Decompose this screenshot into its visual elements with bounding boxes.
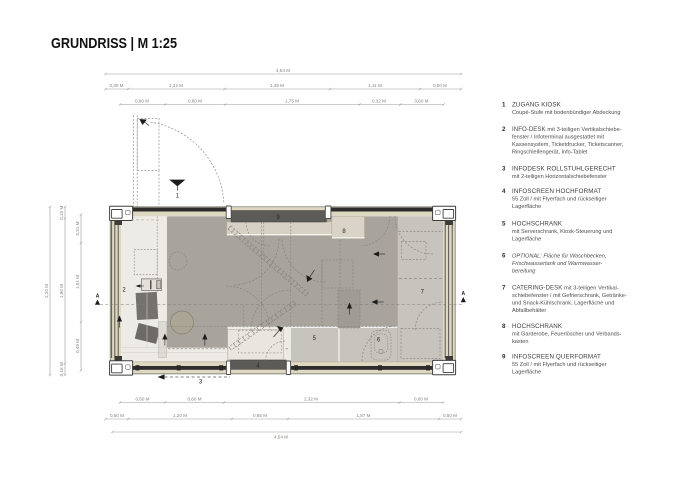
svg-text:und Snack-Kühlschrank, Lagerfl: und Snack-Kühlschrank, Lagerfläche und — [512, 301, 614, 307]
svg-text:55 Zoll / mit Flyerfach und rü: 55 Zoll / mit Flyerfach und rückseitiger — [512, 197, 607, 203]
svg-text:0,50 M: 0,50 M — [433, 83, 447, 88]
svg-text:4,54 M: 4,54 M — [276, 68, 290, 73]
svg-text:mit 2-teiligen Horizontalschie: mit 2-teiligen Horizontalschiebefenster — [512, 174, 607, 180]
svg-text:INFOSCREEN QUERFORMAT: INFOSCREEN QUERFORMAT — [512, 354, 601, 361]
svg-text:2,20 M: 2,20 M — [44, 284, 49, 298]
svg-text:0,60 M: 0,60 M — [135, 98, 149, 103]
svg-text:INFODESK ROLLSTUHLGERECHT: INFODESK ROLLSTUHLGERECHT — [512, 166, 616, 173]
svg-text:55 Zoll / mit Flyerfach und rü: 55 Zoll / mit Flyerfach und rückseitiger — [512, 362, 607, 368]
svg-text:1,39 M: 1,39 M — [270, 83, 284, 88]
svg-text:mit Serverschrank, Kiosk-Steue: mit Serverschrank, Kiosk-Steuerung und — [512, 229, 612, 235]
svg-text:9: 9 — [502, 354, 506, 361]
svg-text:2,32 M: 2,32 M — [304, 396, 318, 401]
svg-text:fenster / Infoterminal ausgest: fenster / Infoterminal ausgestattet mit — [512, 135, 604, 141]
svg-text:0,60 M: 0,60 M — [414, 98, 428, 103]
svg-text:CATERING-DESK mit 3-teiligen V: CATERING-DESK mit 3-teiligen Vertikal- — [512, 285, 619, 292]
svg-text:0,50 M: 0,50 M — [443, 413, 457, 418]
svg-text:8: 8 — [502, 323, 506, 330]
svg-text:OPTIONAL: Fläche für Waschbeck: OPTIONAL: Fläche für Waschbecken, — [512, 254, 606, 260]
svg-text:0,15 M: 0,15 M — [59, 362, 64, 376]
svg-text:4: 4 — [502, 188, 506, 195]
svg-text:1,20 M: 1,20 M — [173, 413, 187, 418]
svg-text:A: A — [461, 291, 465, 297]
svg-text:kasten: kasten — [512, 339, 528, 345]
svg-text:1,75 M: 1,75 M — [285, 98, 299, 103]
svg-text:GRUNDRISS | M 1:25: GRUNDRISS | M 1:25 — [51, 35, 177, 52]
svg-text:INFOSCREEN HOCHFORMAT: INFOSCREEN HOCHFORMAT — [512, 188, 601, 195]
svg-text:HOCHSCHRANK: HOCHSCHRANK — [512, 323, 563, 330]
svg-text:1,90 M: 1,90 M — [59, 284, 64, 298]
svg-text:0,80 M: 0,80 M — [187, 396, 201, 401]
svg-text:6: 6 — [502, 253, 506, 260]
svg-text:2: 2 — [502, 126, 506, 133]
svg-text:0,32 M: 0,32 M — [372, 98, 386, 103]
svg-text:Coupé-Stufe mit bodenbündiger: Coupé-Stufe mit bodenbündiger Abdeckung — [512, 110, 621, 116]
svg-text:HOCHSCHRANK: HOCHSCHRANK — [512, 221, 563, 228]
svg-text:0,85 M: 0,85 M — [253, 413, 267, 418]
svg-text:ZUGANG KIOSK: ZUGANG KIOSK — [512, 102, 562, 109]
svg-text:1,11 M: 1,11 M — [368, 83, 382, 88]
svg-text:4,54 M: 4,54 M — [274, 435, 288, 440]
svg-text:1: 1 — [502, 102, 506, 109]
svg-text:5: 5 — [502, 221, 506, 228]
svg-text:0,50 M: 0,50 M — [110, 413, 124, 418]
svg-text:Ringschleifengerät, Info-Table: Ringschleifengerät, Info-Tablet — [512, 150, 588, 156]
svg-text:0,60 M: 0,60 M — [414, 396, 428, 401]
svg-text:1,01 M: 1,01 M — [75, 275, 80, 289]
svg-text:Kassensystem, Ticketdrucker, T: Kassensystem, Ticketdrucker, Ticketscann… — [512, 142, 624, 148]
svg-text:0,15 M: 0,15 M — [59, 206, 64, 220]
svg-text:0,31 M: 0,31 M — [75, 221, 80, 235]
svg-text:0,49 M: 0,49 M — [75, 339, 80, 353]
svg-text:3: 3 — [502, 166, 506, 173]
svg-text:1,22 M: 1,22 M — [169, 83, 183, 88]
svg-text:bereitung: bereitung — [512, 269, 536, 275]
svg-text:0,80 M: 0,80 M — [188, 98, 202, 103]
svg-text:Frischwassertank und Warmwasse: Frischwassertank und Warmwasser- — [512, 261, 602, 267]
svg-text:INFO-DESK mit 3-teiligen Verti: INFO-DESK mit 3-teiligen Vertikalschiebe… — [512, 126, 622, 133]
svg-text:Lagerfläche: Lagerfläche — [512, 370, 541, 376]
svg-text:Lagerfläche: Lagerfläche — [512, 204, 541, 210]
svg-text:A: A — [96, 294, 100, 300]
svg-text:0,30 M: 0,30 M — [109, 83, 123, 88]
svg-text:1,87 M: 1,87 M — [356, 413, 370, 418]
svg-text:Lagerfläche: Lagerfläche — [512, 237, 541, 243]
svg-text:mit Garderobe, Feuerlöscher un: mit Garderobe, Feuerlöscher und Verbands… — [512, 332, 622, 338]
svg-text:schiebefenster / mit Gefriersc: schiebefenster / mit Gefrierschrank, Get… — [512, 293, 627, 299]
svg-text:7: 7 — [502, 285, 506, 292]
svg-text:Abfallbehälter: Abfallbehälter — [512, 308, 546, 314]
svg-text:0,60 M: 0,60 M — [135, 396, 149, 401]
